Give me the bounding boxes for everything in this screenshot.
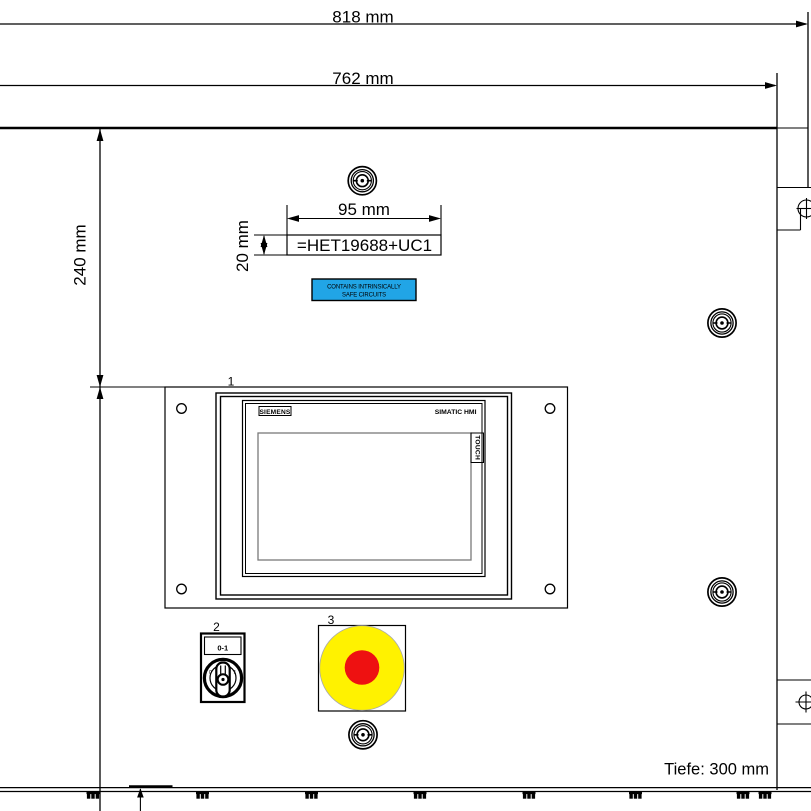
- svg-text:2: 2: [213, 620, 220, 634]
- svg-text:TOUCH: TOUCH: [474, 435, 481, 460]
- svg-text:SIMATIC HMI: SIMATIC HMI: [435, 409, 477, 416]
- svg-text:0-1: 0-1: [217, 644, 228, 653]
- svg-text:SIEMENS: SIEMENS: [259, 409, 290, 416]
- svg-text:CONTAINS INTRINSICALLY: CONTAINS INTRINSICALLY: [327, 284, 401, 290]
- svg-text:Tiefe: 300 mm: Tiefe: 300 mm: [664, 761, 769, 779]
- svg-text:SAFE CIRCUITS: SAFE CIRCUITS: [342, 292, 386, 298]
- svg-text:762 mm: 762 mm: [332, 69, 393, 88]
- svg-text:1: 1: [234, 670, 237, 676]
- svg-text:95 mm: 95 mm: [338, 200, 390, 219]
- svg-text:818 mm: 818 mm: [332, 8, 393, 27]
- svg-text:240 mm: 240 mm: [71, 224, 90, 285]
- svg-text:1: 1: [228, 375, 235, 389]
- svg-text:0: 0: [209, 670, 212, 676]
- svg-text:=HET19688+UC1: =HET19688+UC1: [297, 236, 432, 255]
- svg-text:20 mm: 20 mm: [233, 220, 252, 272]
